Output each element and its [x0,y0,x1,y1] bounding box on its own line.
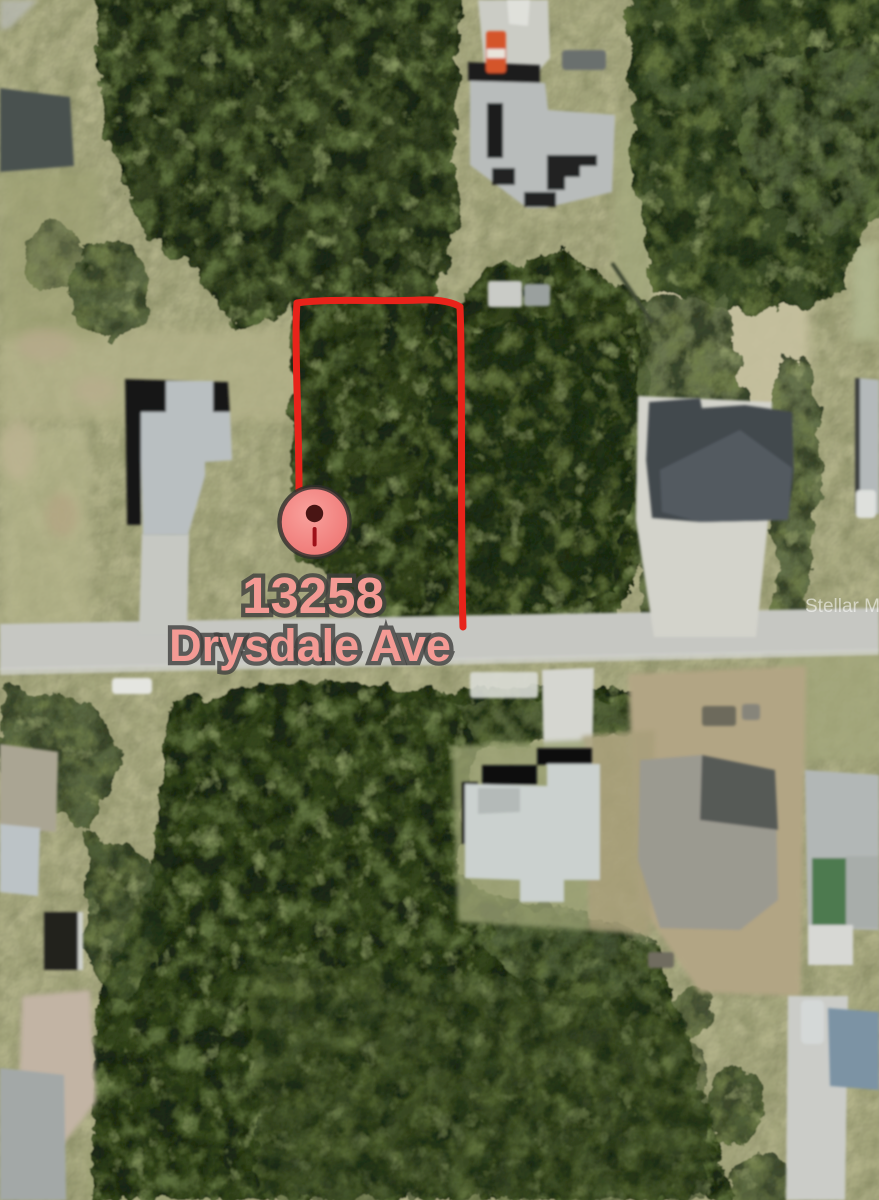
svg-text:Drysdale Ave: Drysdale Ave [169,620,451,671]
svg-text:Stellar MLS: Stellar MLS [805,596,879,617]
svg-text:13258: 13258 [242,567,384,624]
